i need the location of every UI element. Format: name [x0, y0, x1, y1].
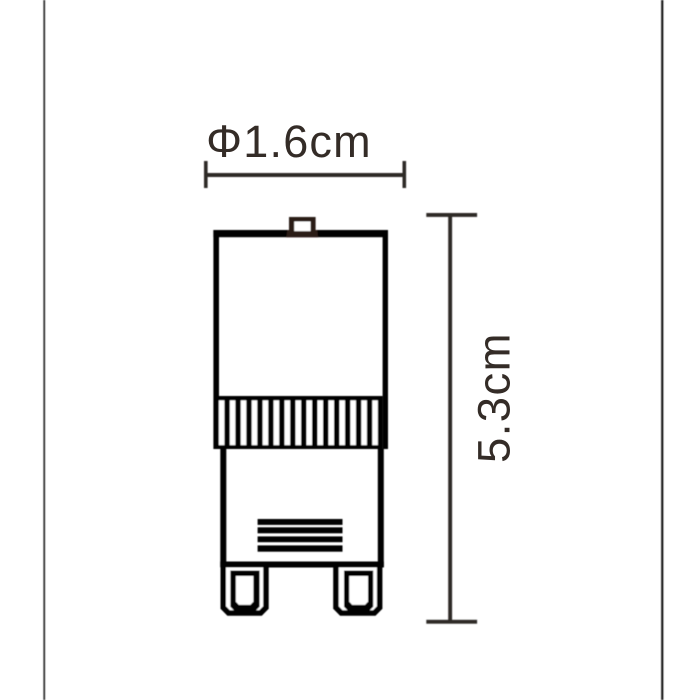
svg-text:Φ1.6cm: Φ1.6cm — [206, 116, 372, 167]
svg-text:5.3cm: 5.3cm — [469, 332, 520, 463]
